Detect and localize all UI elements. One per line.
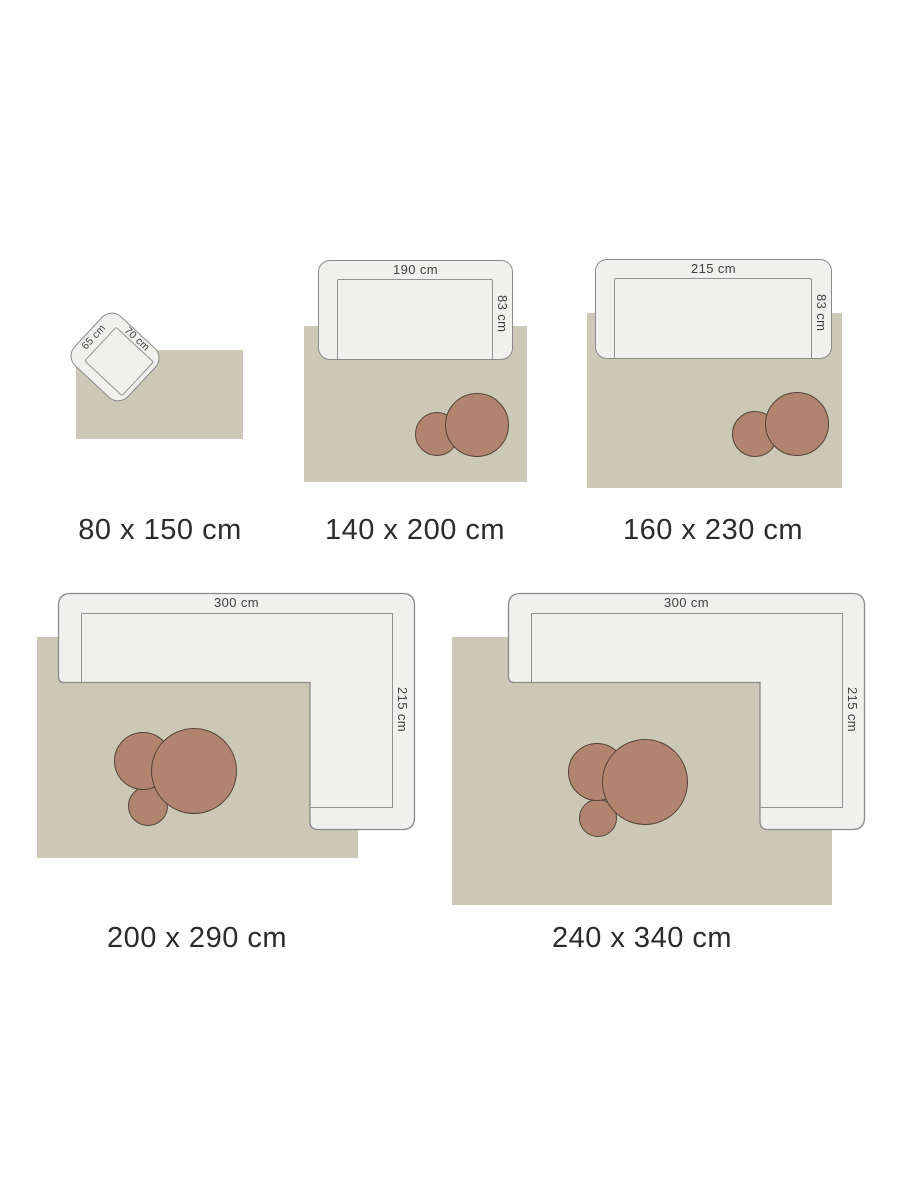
sofa-width-label: 190 cm xyxy=(318,262,513,277)
corner-sofa-outline xyxy=(59,594,415,830)
sofa-seat-outline xyxy=(614,278,812,358)
sofa-depth-label: 215 cm xyxy=(393,674,411,746)
corner-sofa-top-view xyxy=(57,592,417,832)
sofa-depth-label: 215 cm xyxy=(843,674,861,746)
size-caption: 80 x 150 cm xyxy=(30,512,290,548)
size-caption: 200 x 290 cm xyxy=(67,920,327,956)
corner-sofa-outline xyxy=(509,594,865,830)
sofa-depth-label: 83 cm xyxy=(812,277,830,349)
pouf-large xyxy=(151,728,237,814)
sofa-width-label: 215 cm xyxy=(595,261,832,276)
sofa-seat-outline xyxy=(337,279,493,359)
size-caption: 160 x 230 cm xyxy=(583,512,843,548)
corner-sofa-top-view xyxy=(507,592,867,832)
size-caption: 240 x 340 cm xyxy=(512,920,772,956)
sofa-depth-label: 83 cm xyxy=(493,278,511,350)
pouf-large xyxy=(602,739,688,825)
pouf-large xyxy=(445,393,509,457)
pouf-large xyxy=(765,392,829,456)
rug-size-guide-diagram: 65 cm 70 cm 80 x 150 cm 190 cm 83 cm 140… xyxy=(0,0,900,1200)
sofa-width-label: 300 cm xyxy=(508,595,865,610)
size-caption: 140 x 200 cm xyxy=(285,512,545,548)
sofa-width-label: 300 cm xyxy=(58,595,415,610)
